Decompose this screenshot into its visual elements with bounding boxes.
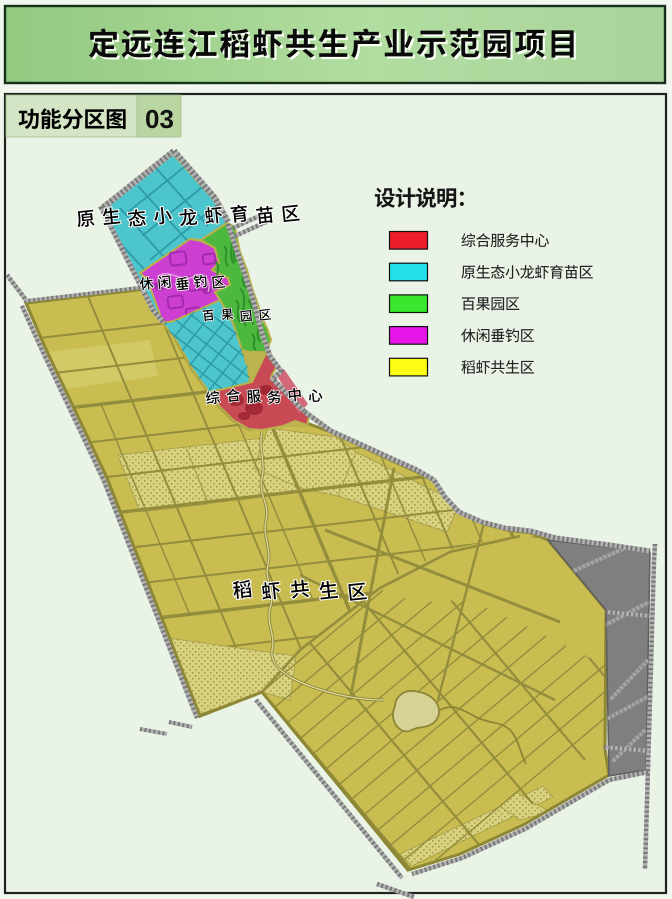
svg-text:03: 03 [145, 104, 174, 134]
